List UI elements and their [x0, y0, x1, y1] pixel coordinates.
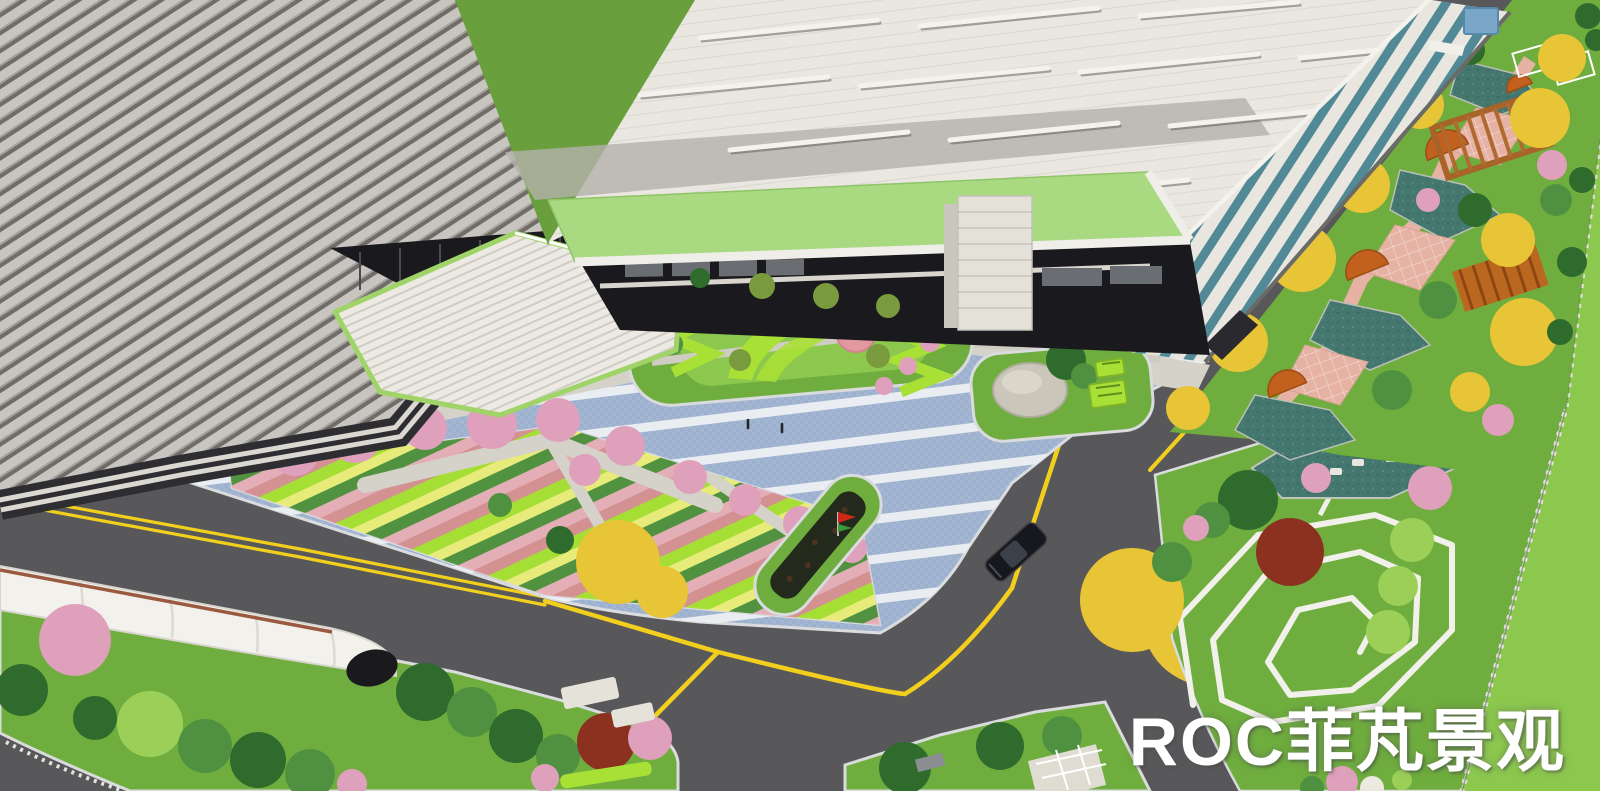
boulder-island — [969, 340, 1156, 444]
entrance-tower — [944, 196, 1032, 330]
rendering-canvas: ROC菲芃景观 — [0, 0, 1600, 791]
entrance-canopy — [548, 172, 1210, 355]
boulder-highlight — [1002, 370, 1042, 394]
utility-box — [1464, 8, 1498, 34]
scene-svg — [0, 0, 1600, 791]
watermark-logo: ROC菲芃景观 — [1129, 686, 1566, 785]
